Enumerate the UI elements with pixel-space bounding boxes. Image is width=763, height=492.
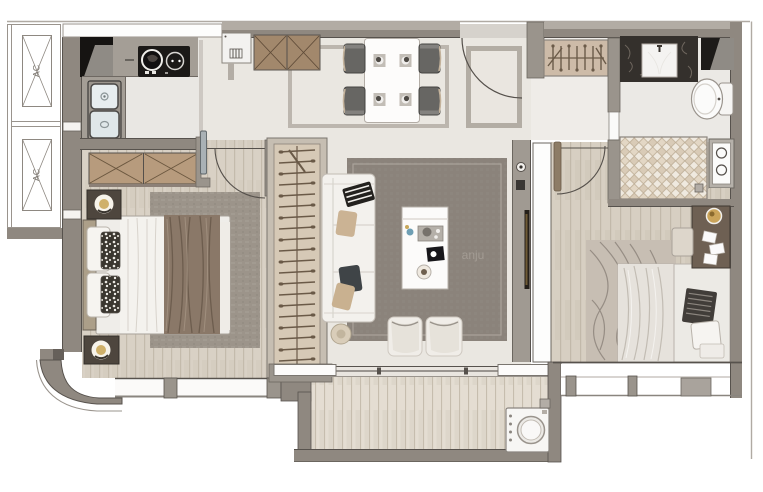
svg-text:AC: AC xyxy=(31,168,41,181)
svg-text:AC: AC xyxy=(31,64,41,77)
svg-text:anju: anju xyxy=(462,248,485,262)
